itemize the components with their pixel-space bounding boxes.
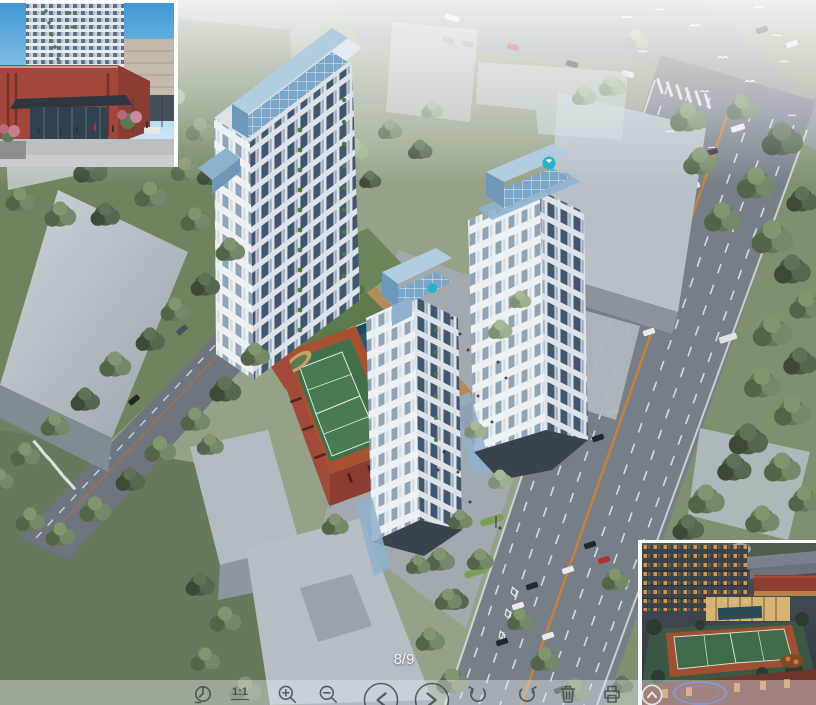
rotate-left-icon <box>469 687 485 701</box>
page-indicator: 8/9 <box>378 651 430 668</box>
collapse-toolbar-button[interactable] <box>640 683 664 705</box>
developer-logo <box>543 157 556 170</box>
printer-icon <box>605 687 619 703</box>
image-viewer-window: 8/9 1:1 <box>0 0 816 705</box>
lap-pool <box>718 606 763 620</box>
chevron-left-icon <box>365 684 398 705</box>
entrance-glazing <box>30 107 108 141</box>
delete-button[interactable] <box>556 682 580 705</box>
zoom-in-button[interactable] <box>275 682 299 705</box>
rotate-left-button[interactable] <box>466 682 490 705</box>
rotate-right-button[interactable] <box>515 682 539 705</box>
developer-logo-b <box>427 283 437 293</box>
rotate-right-icon <box>520 687 536 701</box>
zoom-in-icon <box>279 686 295 702</box>
previous-image-button[interactable] <box>362 681 400 705</box>
zoom-out-icon <box>320 686 336 702</box>
trash-icon <box>562 687 575 703</box>
red-podium <box>0 65 150 143</box>
chevron-up-icon <box>642 685 661 704</box>
print-button[interactable] <box>600 682 624 705</box>
fit-to-window-button[interactable] <box>191 682 215 705</box>
thumbnail-street-view <box>0 0 178 167</box>
parked-car <box>144 127 160 134</box>
right-buildings <box>747 551 816 596</box>
fit-to-window-icon <box>196 687 211 703</box>
actual-size-button[interactable]: 1:1 <box>231 687 249 700</box>
zoom-out-button[interactable] <box>316 682 340 705</box>
viewer-toolbar <box>0 680 816 705</box>
next-image-button[interactable] <box>413 681 451 705</box>
chevron-right-icon <box>416 684 449 705</box>
